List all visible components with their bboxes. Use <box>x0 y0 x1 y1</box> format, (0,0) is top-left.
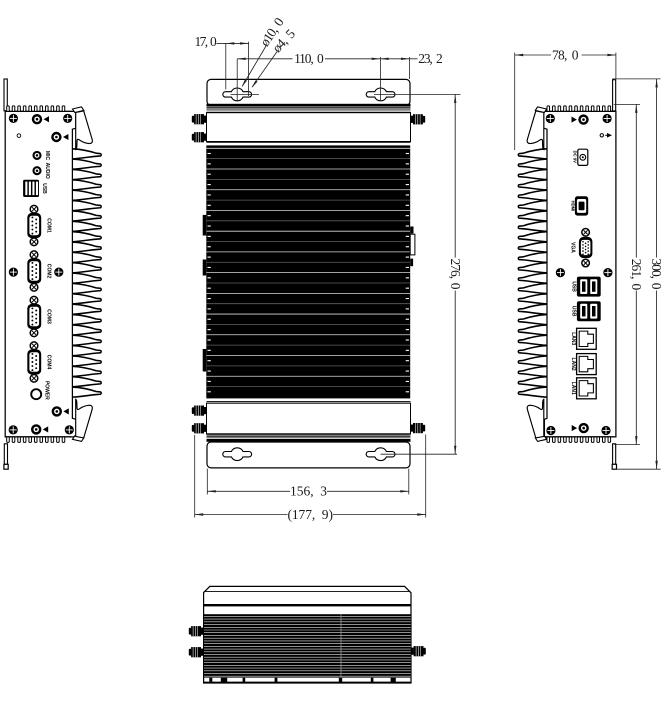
svg-text:LAN2: LAN2 <box>570 358 576 371</box>
svg-text:261, 0: 261, 0 <box>629 259 644 291</box>
svg-text:USB: USB <box>41 183 47 194</box>
svg-text:MIC: MIC <box>44 151 50 161</box>
svg-text:(177, 9): (177, 9) <box>287 507 333 522</box>
svg-text:23, 2: 23, 2 <box>418 51 443 66</box>
svg-text:COM1: COM1 <box>45 218 51 233</box>
svg-text:USB: USB <box>571 281 577 292</box>
svg-text:VGA: VGA <box>569 242 575 253</box>
svg-text:COM2: COM2 <box>45 264 51 279</box>
svg-text:LAN3: LAN3 <box>570 332 576 345</box>
svg-text:COM4: COM4 <box>45 355 51 370</box>
svg-text:78, 0: 78, 0 <box>552 47 579 62</box>
svg-text:17, 0: 17, 0 <box>194 34 217 49</box>
svg-text:USB: USB <box>571 306 577 317</box>
svg-text:110, 0: 110, 0 <box>294 51 324 66</box>
svg-text:POWER: POWER <box>44 381 50 400</box>
svg-text:156, 3: 156, 3 <box>290 484 327 499</box>
svg-text:COM3: COM3 <box>45 309 51 324</box>
svg-text:DC 9V: DC 9V <box>572 151 577 164</box>
svg-text:LAN1: LAN1 <box>570 382 576 395</box>
svg-text:AUDIO: AUDIO <box>44 163 50 179</box>
svg-text:300, 0: 300, 0 <box>649 259 664 290</box>
svg-text:276, 0: 276, 0 <box>448 259 463 290</box>
svg-text:HDMI: HDMI <box>571 201 576 212</box>
